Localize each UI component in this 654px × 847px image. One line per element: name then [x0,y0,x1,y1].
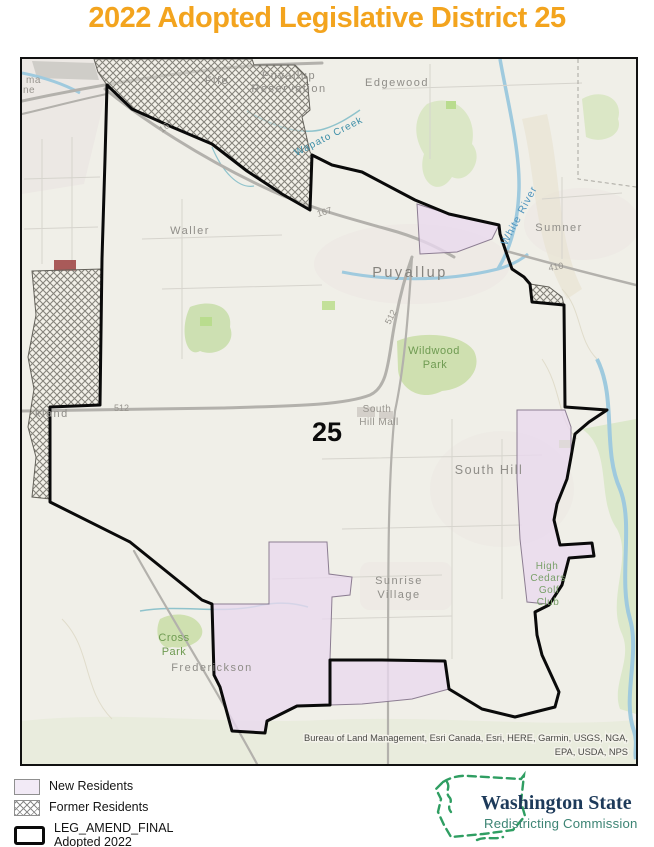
label-frederickson: Frederickson [171,662,253,674]
map-legend: New Residents Former Residents LEG_AMEND… [14,779,173,847]
label-high-cedars-4: Club [537,597,560,608]
label-high-cedars-3: Golf [539,585,559,596]
label-wildwood-park-1: Wildwood [408,345,460,357]
new-residents-label: New Residents [49,780,133,794]
district-map: ma ne Fife Puyallup Reservation Edgewood… [20,57,638,766]
new-residents-swatch [14,779,40,795]
district-number: 25 [312,417,342,447]
label-sunrise-village-1: Sunrise [375,575,423,587]
label-wildwood-park-2: Park [423,359,448,371]
label-sumner: Sumner [535,222,583,234]
label-puyallup-reservation-1: Puyallup [262,70,316,82]
label-waller: Waller [170,225,210,237]
district-layer-label: LEG_AMEND_FINAL Adopted 2022 [54,821,173,847]
label-south-hill-mall-2: Hill Mall [359,417,399,428]
map-attribution-line1: Bureau of Land Management, Esri Canada, … [304,733,628,743]
label-high-cedars-1: High [536,561,559,572]
label-hwy-512-a: 512 [114,403,129,413]
page: 2022 Adopted Legislative District 25 [0,0,654,847]
label-edgewood: Edgewood [365,77,429,89]
label-parkland-fragment: kland [35,408,69,420]
green-patch-4 [322,301,335,310]
map-svg: ma ne Fife Puyallup Reservation Edgewood… [22,59,636,764]
legend-row-district-layer: LEG_AMEND_FINAL Adopted 2022 [14,821,173,847]
former-residents-label: Former Residents [49,801,148,815]
map-attribution-line2: EPA, USDA, NPS [555,747,628,757]
label-cross-park-1: Cross [158,632,189,644]
label-cross-park-2: Park [162,646,187,658]
green-patch-1 [200,317,212,326]
district-boundary-swatch [14,826,45,845]
label-south-hill-mall-1: South [363,404,392,415]
logo-org-subtitle: Redistricting Commission [484,816,654,831]
redistricting-commission-logo: Washington State Redistricting Commissio… [425,765,654,847]
label-high-cedars-2: Cedars [530,573,565,584]
label-puyallup: Puyallup [372,265,448,281]
green-left [185,304,232,353]
label-south-hill: South Hill [455,463,524,477]
district-layer-label-line2: Adopted 2022 [54,835,173,847]
label-puyallup-reservation-2: Reservation [251,83,326,95]
legend-row-former-residents: Former Residents [14,800,173,816]
label-sunrise-village-2: Village [377,589,420,601]
legend-row-new-residents: New Residents [14,779,173,795]
former-residents-swatch [14,800,40,816]
district-layer-label-line1: LEG_AMEND_FINAL [54,821,173,835]
page-title: 2022 Adopted Legislative District 25 [0,2,654,35]
label-fife: Fife [205,75,229,87]
label-tacoma-fragment-2: ne [23,85,35,96]
logo-org-name: Washington State [481,792,654,815]
green-patch-2 [446,101,456,109]
green-top-right [582,94,619,140]
